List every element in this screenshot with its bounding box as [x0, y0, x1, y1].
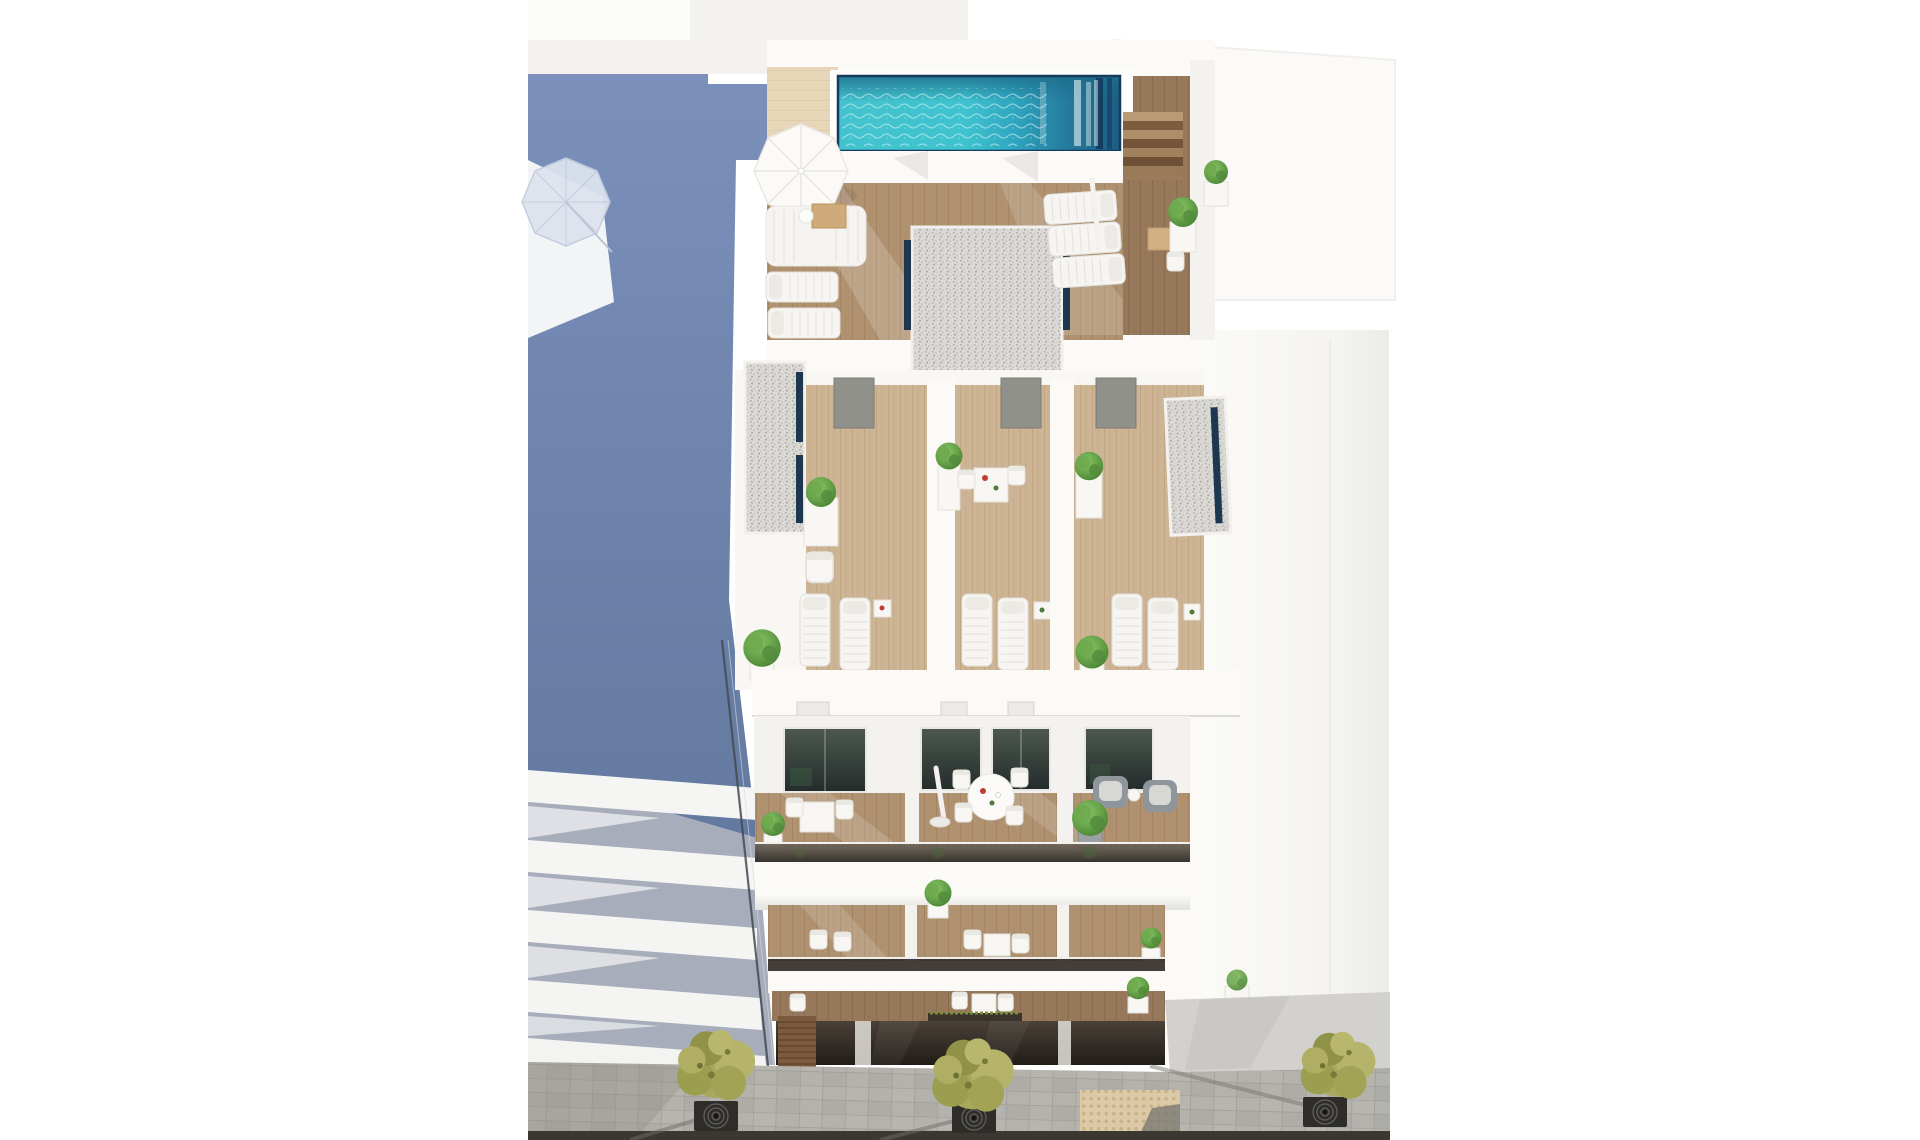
render-canvas	[0, 0, 1920, 1140]
balcony-divider	[1057, 793, 1073, 847]
ground-pillar	[1058, 1021, 1071, 1065]
gravel-strip-left	[745, 362, 805, 533]
balcony-divider	[905, 793, 919, 847]
sun-lounger	[800, 594, 830, 666]
glass-balustrade-2	[768, 959, 1165, 971]
balcony-chair	[836, 800, 853, 819]
balcony-plant	[1127, 977, 1150, 1000]
roof-plant	[1168, 197, 1198, 252]
terrace-door	[834, 378, 874, 428]
dining-chair	[1011, 768, 1028, 787]
roof-loungers-right	[1043, 190, 1125, 289]
balcony-chair	[964, 930, 981, 949]
rooftop-pool	[830, 70, 1135, 158]
balcony-chair	[952, 992, 967, 1009]
balcony-table	[972, 994, 996, 1014]
roof-outdoor-sofa	[766, 204, 866, 266]
sun-lounger	[1112, 594, 1142, 666]
gravel-strip-right	[1165, 397, 1231, 535]
sun-lounger	[1148, 598, 1178, 670]
side-table	[1128, 789, 1140, 801]
dining-chair	[1006, 806, 1023, 825]
dining-chair	[953, 770, 970, 789]
balcony-divider	[1057, 905, 1069, 961]
balcony-chair	[1012, 934, 1029, 953]
balcony-chair	[786, 798, 803, 817]
terrace-chair	[806, 552, 833, 582]
balcony-slab-2	[768, 971, 1165, 993]
vent-box	[1008, 702, 1034, 716]
tree-grate	[694, 1101, 738, 1131]
window-glass	[921, 728, 981, 790]
aerial-render	[0, 0, 1920, 1140]
attic-terrace-level	[735, 362, 1231, 690]
attic-terrace-a	[800, 378, 927, 672]
terrace-door	[1001, 378, 1041, 428]
pool-reflection-streak	[1074, 80, 1081, 146]
dining-chair	[955, 803, 972, 822]
balcony-chair	[790, 994, 805, 1011]
terrace-divider-wall	[1050, 378, 1074, 678]
bistro-chair	[1008, 466, 1025, 485]
roof-bistro-table	[1148, 228, 1172, 250]
roof-coffee-table	[812, 204, 846, 228]
balcony-plant	[925, 880, 952, 907]
roof-chair	[1167, 252, 1184, 271]
terrace-divider-wall	[927, 378, 955, 673]
balcony-plant	[1141, 928, 1162, 949]
square-table	[800, 802, 834, 832]
vent-box	[797, 702, 829, 716]
sun-lounger	[962, 594, 992, 666]
bistro-chair	[958, 470, 975, 489]
ground-pillar	[855, 1021, 871, 1065]
wood-stairs	[1123, 112, 1183, 180]
tree-grate	[1303, 1097, 1347, 1127]
sun-lounger	[998, 598, 1028, 670]
balcony-chair	[998, 994, 1013, 1011]
right-edge-plants	[1204, 160, 1228, 206]
balcony-table	[984, 934, 1010, 956]
glass-balustrade-1	[755, 843, 1190, 862]
terrace-door	[1096, 378, 1136, 428]
skylight-glass-left	[904, 240, 911, 330]
balcony-chair	[810, 930, 827, 949]
sun-lounger	[840, 598, 870, 670]
balcony-divider	[905, 905, 917, 961]
balcony-chair	[834, 932, 851, 951]
vent-box	[941, 702, 967, 716]
bistro-table	[974, 468, 1008, 502]
